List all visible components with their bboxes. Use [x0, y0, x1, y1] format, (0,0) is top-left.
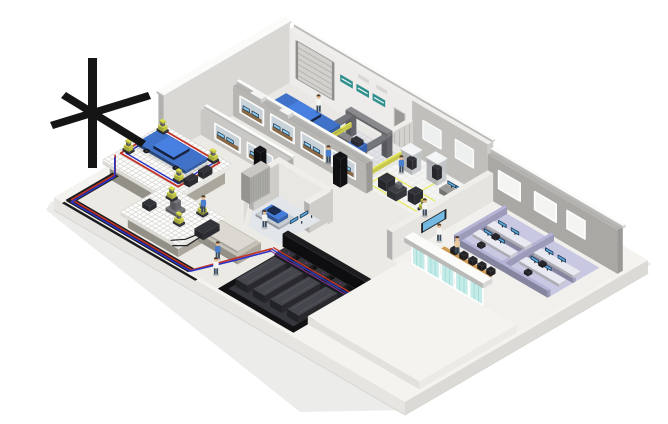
illustration-canvas: Cutaway 3D rendering of an automotive te… [0, 0, 668, 424]
facility-isometric-illustration [0, 0, 668, 424]
